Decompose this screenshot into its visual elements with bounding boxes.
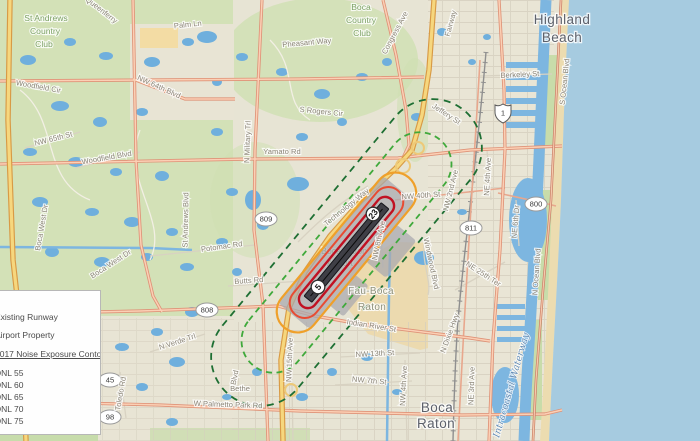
pond xyxy=(382,58,392,66)
legend-dnl-item: DNL 75 xyxy=(0,417,100,426)
map-label: Fau-Boca xyxy=(348,286,394,297)
pond xyxy=(226,188,238,196)
svg-text:98: 98 xyxy=(106,413,114,422)
pond xyxy=(296,393,308,401)
route-shield-809: 809 xyxy=(255,212,277,226)
pond xyxy=(180,263,194,271)
pond xyxy=(110,168,122,176)
pond xyxy=(287,177,309,191)
map-figure: Boca RatonAirport 235 80980881180045981 … xyxy=(0,0,700,441)
map-label: Raton xyxy=(417,416,455,431)
map-label: St Andrews xyxy=(24,13,67,23)
map-label: Bethe xyxy=(230,384,250,393)
pond xyxy=(155,171,169,181)
svg-text:1: 1 xyxy=(501,109,505,118)
pond xyxy=(85,208,99,216)
pond xyxy=(232,268,242,276)
legend-dnl-item: DNL 60 xyxy=(0,381,100,390)
pond xyxy=(93,117,107,127)
svg-text:45: 45 xyxy=(106,376,114,385)
legend-dnl-item: DNL 70 xyxy=(0,405,100,414)
map-label: Club xyxy=(35,39,53,49)
pond xyxy=(20,55,36,65)
pond xyxy=(124,217,140,227)
pond xyxy=(337,118,347,126)
svg-text:811: 811 xyxy=(465,224,477,233)
legend-dnl-item: DNL 65 xyxy=(0,393,100,402)
map-label: St Andrews Blvd xyxy=(181,192,191,247)
pond xyxy=(51,101,69,111)
svg-text:800: 800 xyxy=(530,200,543,209)
svg-text:808: 808 xyxy=(201,306,214,315)
legend-dnl-list: DNL 55DNL 60DNL 65DNL 70DNL 75 xyxy=(0,369,100,426)
map-label: Yamato Rd xyxy=(263,147,300,156)
pond xyxy=(314,89,330,99)
pond xyxy=(144,57,160,67)
pond xyxy=(115,343,129,351)
route-shield-800: 800 xyxy=(525,197,547,211)
pond xyxy=(166,228,178,236)
map-label: Beach xyxy=(542,30,582,45)
pond xyxy=(468,59,476,65)
legend-items: Existing RunwayAirport Property xyxy=(0,313,100,340)
pond xyxy=(457,209,467,215)
pond xyxy=(99,52,113,60)
pond xyxy=(23,148,37,156)
map-label: Club xyxy=(353,28,371,38)
pond xyxy=(296,133,308,141)
legend-item: Existing Runway xyxy=(0,313,100,322)
legend-panel: 9 Existing RunwayAirport Property 2017 N… xyxy=(0,290,101,435)
ocean xyxy=(549,0,700,441)
route-shield-808: 808 xyxy=(196,303,218,317)
route-shield-98: 98 xyxy=(99,410,121,424)
pond xyxy=(136,383,148,391)
pond xyxy=(236,53,248,61)
pond xyxy=(327,368,337,376)
pond xyxy=(211,128,223,136)
pond xyxy=(169,357,185,367)
pond xyxy=(136,108,148,116)
map-label: Country xyxy=(30,26,61,36)
map-label: Boca xyxy=(351,2,371,12)
map-label: Country xyxy=(346,15,377,25)
pond xyxy=(483,34,491,40)
map-label: Boca xyxy=(421,400,453,415)
pond xyxy=(151,328,163,336)
svg-text:809: 809 xyxy=(260,215,273,224)
map-label: NW 15th Ave xyxy=(284,338,295,382)
map-label: N Military Trl xyxy=(242,120,252,163)
legend-contours-heading: 2017 Noise Exposure Contours xyxy=(0,350,100,359)
route-shield-811: 811 xyxy=(460,221,482,235)
map-label: Raton xyxy=(358,302,386,313)
pond xyxy=(197,31,217,43)
legend-title-fragment: 9 xyxy=(0,295,100,304)
map-canvas[interactable]: Boca RatonAirport 235 80980881180045981 … xyxy=(0,0,700,441)
pond xyxy=(166,418,178,426)
map-label: NE 3rd Ave xyxy=(466,367,476,406)
legend-item: Airport Property xyxy=(0,331,100,340)
map-label: Highland xyxy=(534,12,591,27)
pond xyxy=(64,38,76,46)
pond xyxy=(182,38,194,46)
legend-dnl-item: DNL 55 xyxy=(0,369,100,378)
